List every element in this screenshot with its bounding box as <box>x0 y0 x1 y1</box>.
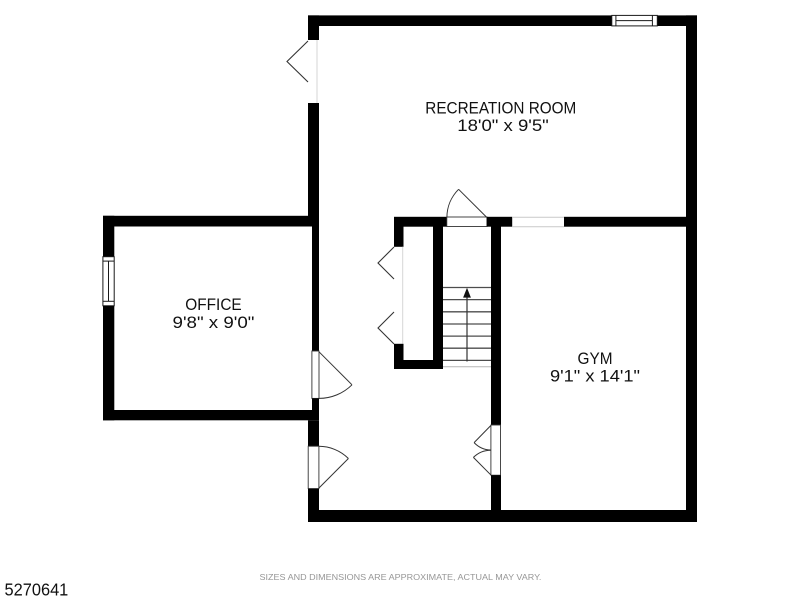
svg-text:GYM: GYM <box>578 349 613 368</box>
svg-text:5270641: 5270641 <box>5 580 69 600</box>
svg-text:9'1" x 14'1": 9'1" x 14'1" <box>550 366 640 385</box>
svg-text:18'0" x 9'5": 18'0" x 9'5" <box>457 116 549 135</box>
svg-text:RECREATION ROOM: RECREATION ROOM <box>425 99 576 118</box>
svg-text:SIZES AND DIMENSIONS ARE APPRO: SIZES AND DIMENSIONS ARE APPROXIMATE, AC… <box>260 573 542 582</box>
svg-text:OFFICE: OFFICE <box>185 295 241 314</box>
svg-text:9'8" x 9'0": 9'8" x 9'0" <box>173 313 255 332</box>
